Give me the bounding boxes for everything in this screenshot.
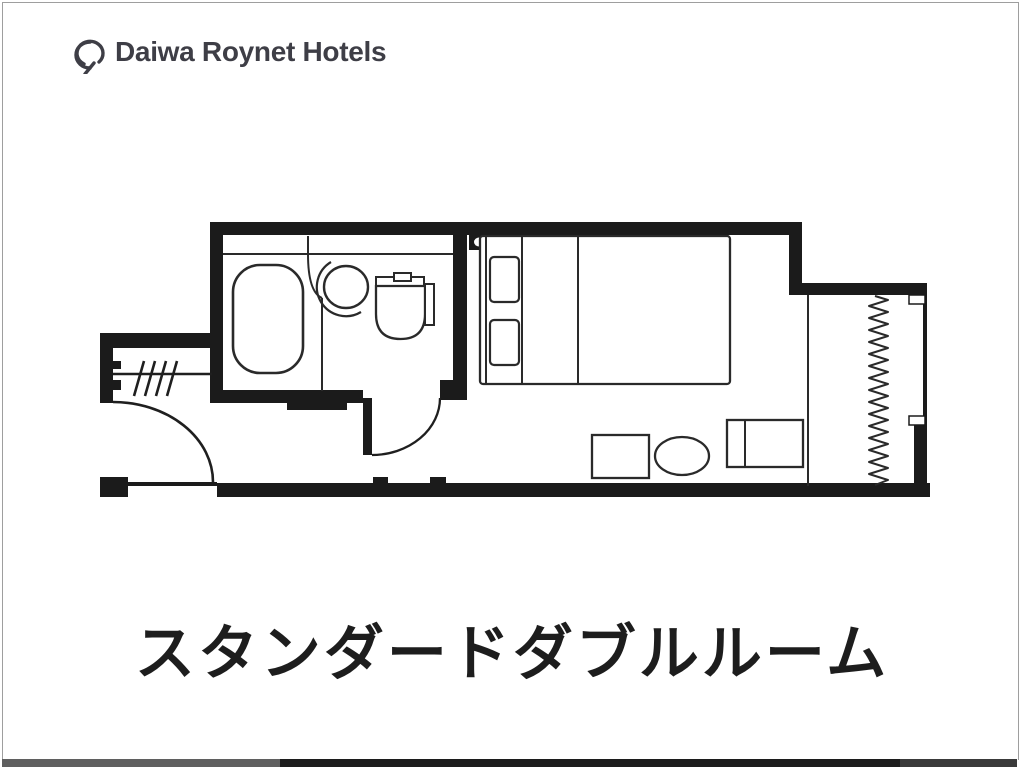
entrance-left-wall	[100, 333, 113, 403]
bathroom-right-wall-step	[440, 380, 467, 400]
pillow-2	[490, 320, 519, 365]
entrance-top-wall	[100, 333, 213, 348]
bottom-wall	[217, 483, 930, 497]
bottom-left-corner-wall	[100, 477, 128, 497]
bottom-wall-tab-1	[373, 477, 388, 484]
top-wall	[210, 222, 802, 235]
bottom-border-bar-right	[900, 759, 1017, 767]
toilet-bowl	[376, 286, 425, 339]
bottom-border-bar-middle	[280, 759, 900, 767]
door-hinge-nub-1	[113, 361, 121, 369]
bathroom-right-wall	[453, 222, 467, 380]
bathroom-door-swing	[372, 398, 440, 455]
toilet-side-panel	[425, 284, 434, 325]
window-cap-top	[909, 295, 925, 304]
bathtub	[233, 265, 303, 373]
pillow-1	[490, 257, 519, 302]
entrance-threshold	[128, 482, 217, 486]
room-type-title: スタンダードダブルルーム	[0, 605, 1024, 692]
window-cap-bottom	[909, 416, 925, 425]
curtain	[869, 296, 888, 485]
door-hinge-nub-2	[113, 380, 121, 390]
toilet-flush-button	[394, 273, 411, 281]
desk	[592, 435, 649, 478]
stool	[655, 437, 709, 475]
luggage-rack	[727, 420, 803, 467]
bottom-border-bar-left	[2, 759, 280, 767]
entrance-door-swing	[113, 402, 213, 482]
bottom-wall-tab-2	[430, 477, 446, 484]
hanger-rack-hangers	[134, 361, 177, 396]
bathroom-door-leaf	[363, 398, 372, 455]
step-wall	[789, 283, 927, 295]
washbasin	[324, 266, 368, 308]
window	[912, 300, 923, 420]
bathroom-lower-tab	[287, 400, 347, 410]
